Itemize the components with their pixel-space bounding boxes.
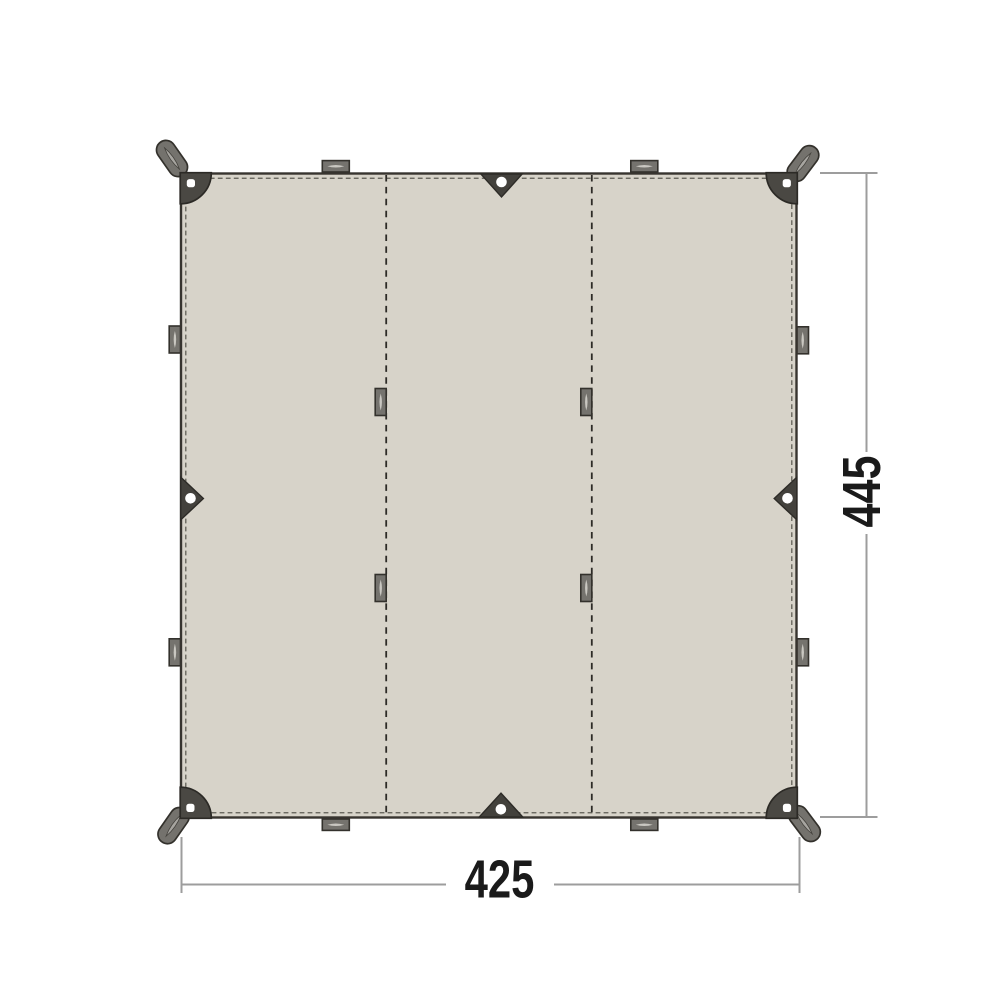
svg-text:425: 425 bbox=[465, 849, 535, 909]
svg-text:445: 445 bbox=[833, 455, 893, 527]
